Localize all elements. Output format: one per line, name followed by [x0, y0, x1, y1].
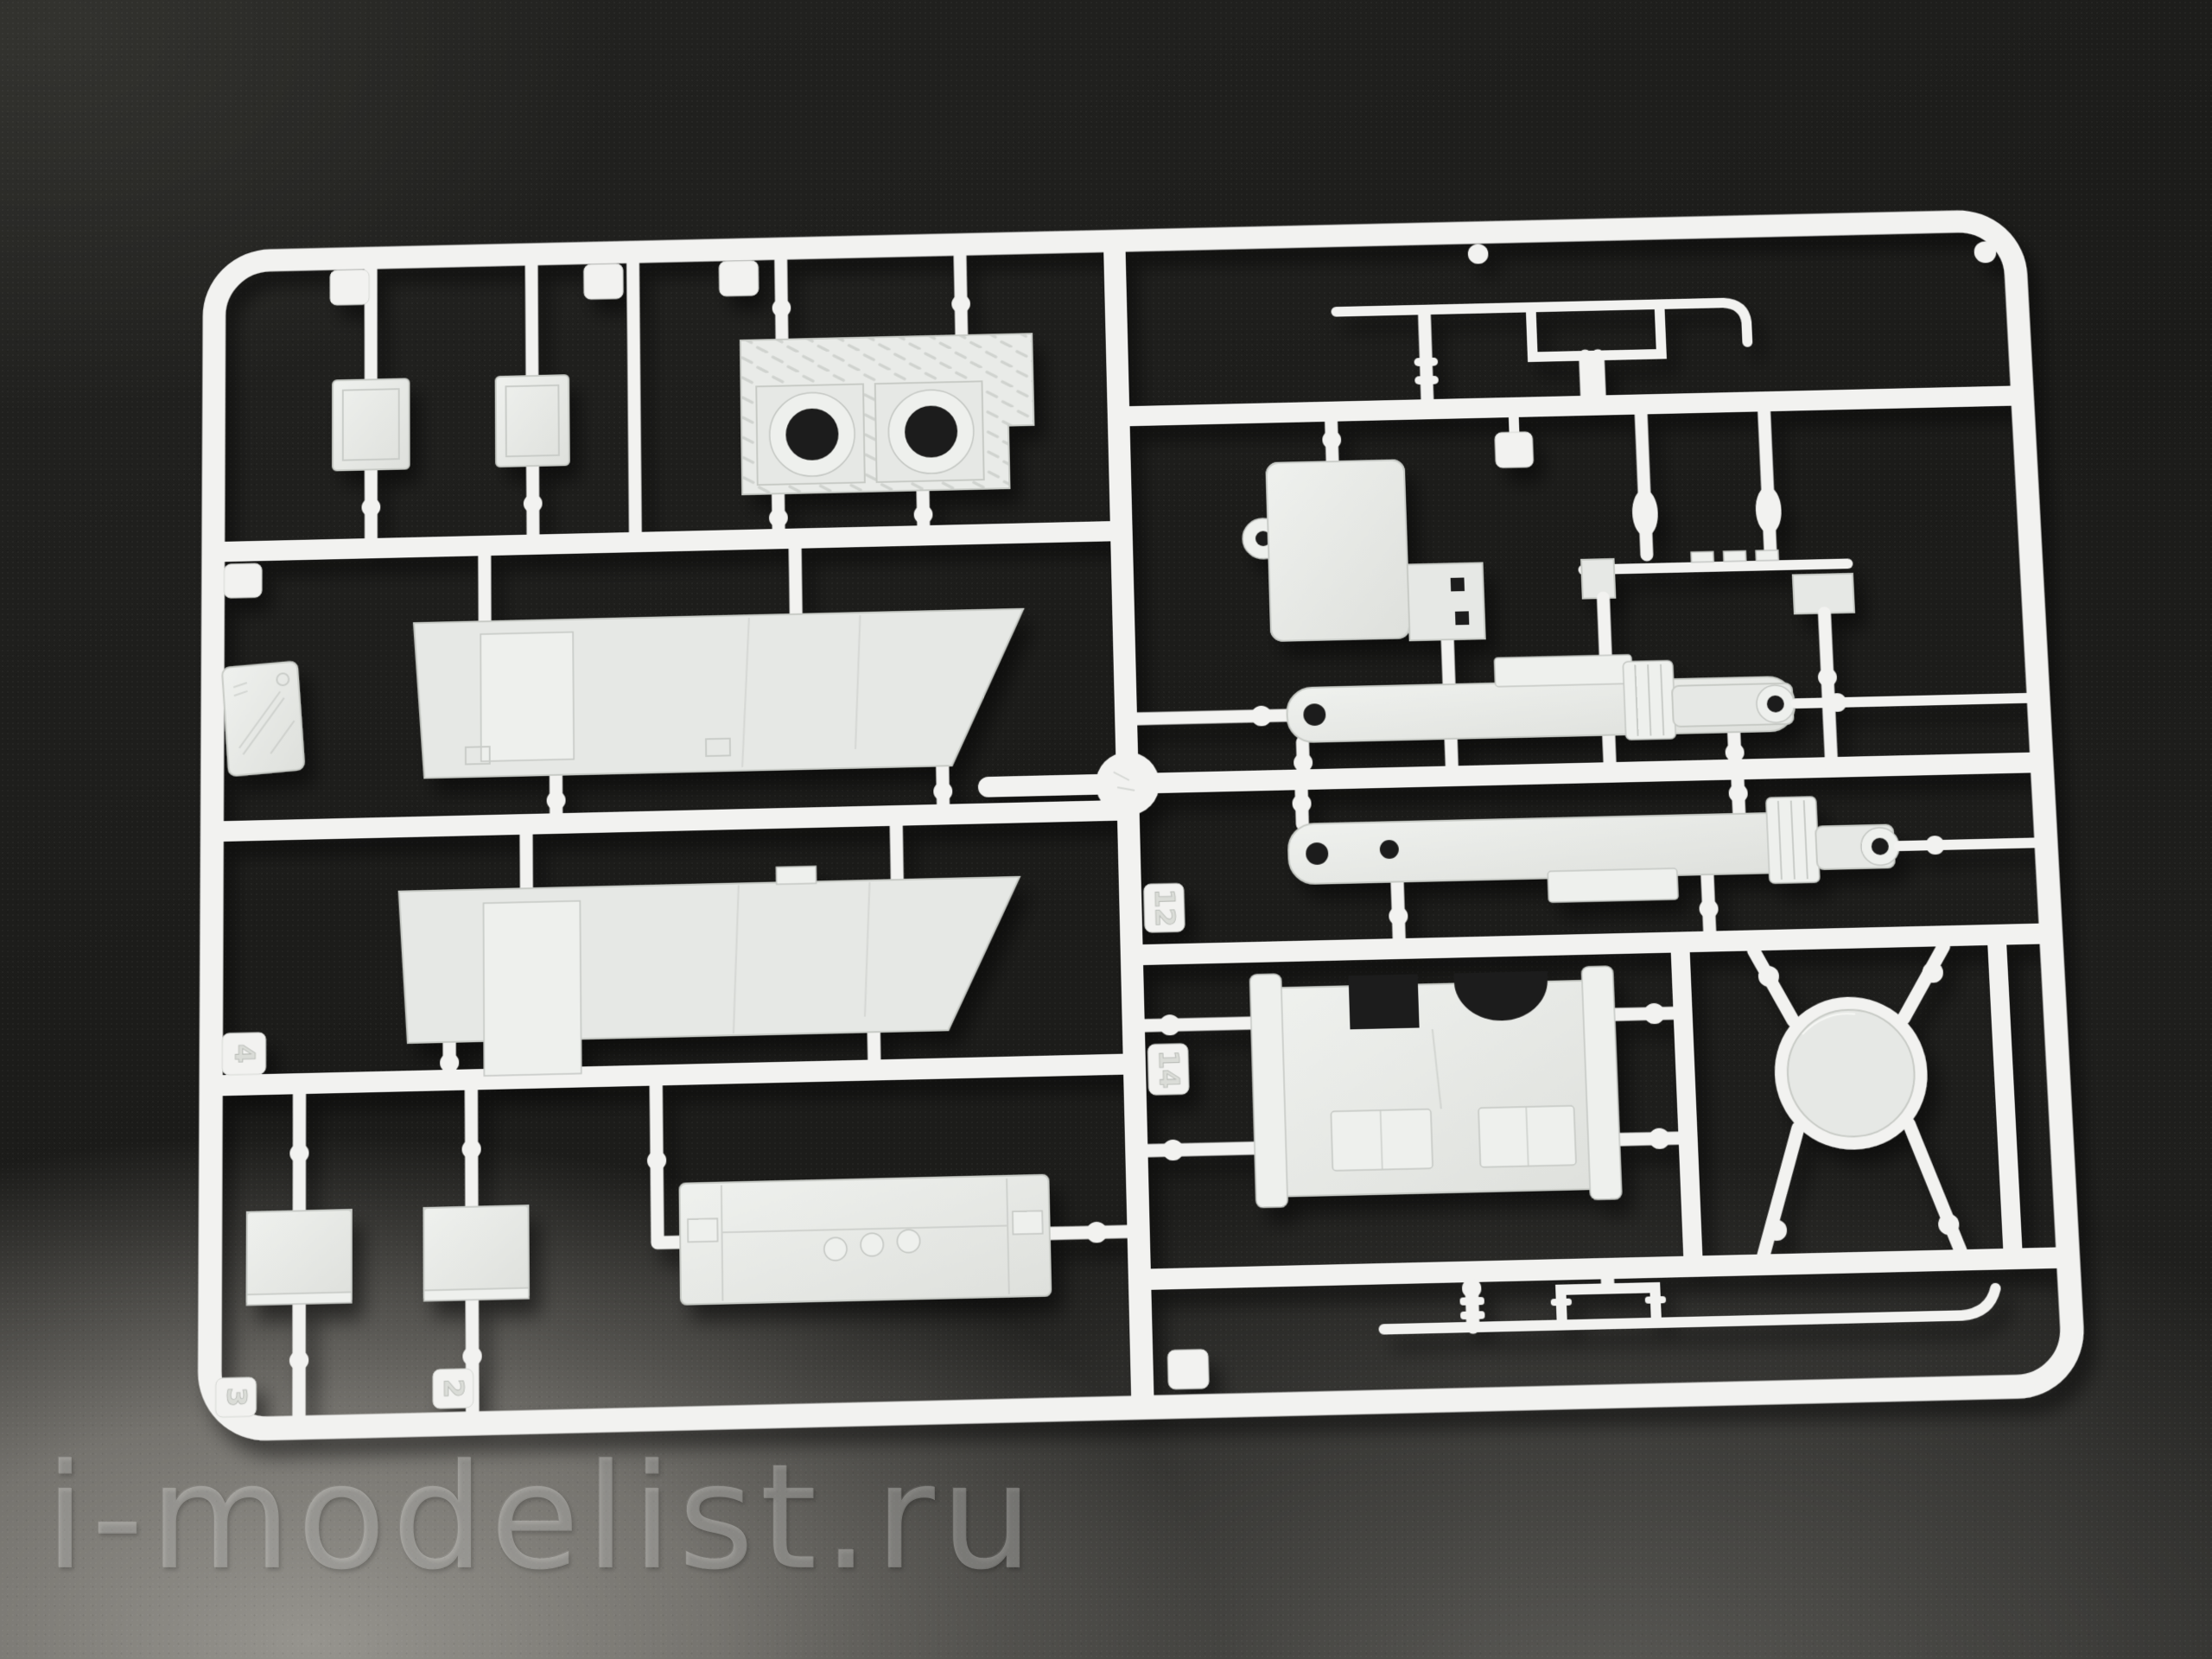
photo-stage: 4 3 2 12 14 i-modelist.ru	[0, 0, 2212, 1659]
runner-h2	[211, 1064, 1135, 1085]
part-hull-side-panel-lower	[399, 813, 1024, 1082]
part-outrigger-beam-lower	[1287, 762, 2051, 951]
sprue-tilt-wrapper: 4 3 2 12 14	[0, 6, 2212, 1659]
part-number-tab	[330, 270, 369, 305]
louver-grille-chain-1	[246, 1083, 352, 1429]
part-square-hatch-1	[333, 378, 410, 470]
part-number-tab	[1495, 432, 1534, 468]
part-cab-back-panel	[646, 1064, 1140, 1305]
stem-plain	[632, 252, 635, 543]
part-number-tab	[1167, 1350, 1209, 1389]
sprue: 4 3 2 12 14	[209, 220, 2075, 1430]
part-brand-plate	[222, 661, 305, 776]
watermark: i-modelist.ru	[45, 1433, 1039, 1602]
runner-right-low	[1132, 933, 2051, 955]
part-number-4: 4	[228, 1044, 260, 1064]
part-hull-side-panel-upper	[414, 533, 1028, 827]
part-number-tab	[224, 563, 262, 598]
part-louver-grille-2	[423, 1205, 529, 1297]
gate-nub	[1467, 244, 1488, 264]
runner-h1	[213, 531, 1122, 551]
part-number-tab	[719, 261, 759, 296]
part-round-hatch-disc	[1751, 946, 1961, 1255]
square-hatch-chain-2	[495, 253, 569, 545]
part-louver-grille-1	[247, 1210, 352, 1301]
sprue-photo-svg: 4 3 2 12 14	[0, 6, 2212, 1659]
runner-right-top	[1119, 396, 2023, 416]
part-number-14: 14	[1152, 1050, 1185, 1090]
part-number-tab	[584, 264, 623, 299]
part-number-2: 2	[437, 1378, 469, 1399]
part-number-12: 12	[1148, 888, 1181, 927]
part-checkerplate-mount	[740, 243, 1037, 540]
runner-h1b	[212, 810, 1128, 832]
part-number-3: 3	[219, 1387, 251, 1408]
part-cab-floor-panel	[1132, 964, 1690, 1210]
runner-vertical-right-1	[1680, 942, 1694, 1266]
runner-vertical-right-2	[1997, 935, 2013, 1259]
